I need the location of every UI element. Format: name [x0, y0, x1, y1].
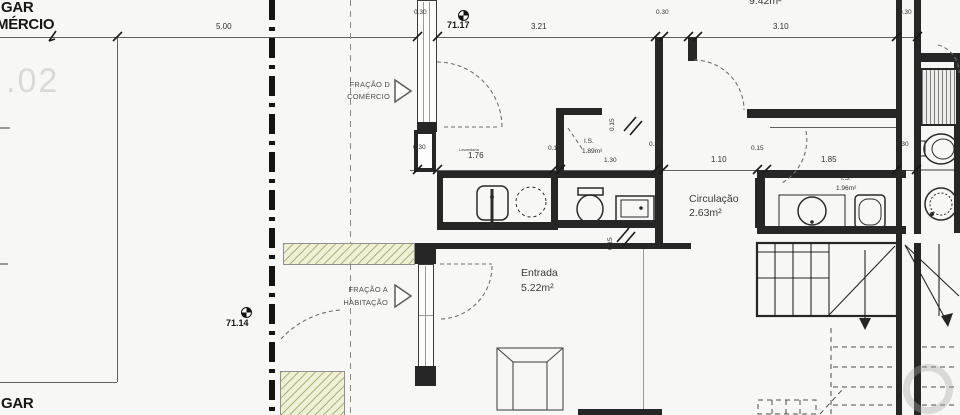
- dim-0-15-b: 0.15: [751, 146, 764, 153]
- dim-3-10: 3.10: [773, 23, 789, 31]
- dim-0-15-v2: 0.15: [608, 237, 615, 250]
- room-entrada-line1: Entrada: [521, 268, 558, 279]
- dim-0-15-v1: 0.15: [610, 118, 617, 131]
- room-is-189-line1: I.S.: [584, 139, 594, 146]
- watermark-logo: [903, 364, 953, 414]
- room-entrada-line2: 5.22m²: [521, 283, 554, 294]
- room-is-196-line2: 1.96m²: [836, 186, 856, 193]
- dim-0-15-a: 0.15: [548, 146, 561, 153]
- dim-1-85: 1.85: [821, 156, 837, 164]
- label-fracao-d-line2: COMÉRCIO: [328, 93, 390, 101]
- label-gar-bottom: GAR: [1, 396, 33, 412]
- label-fracao-a-line2: HABITAÇÃO: [326, 299, 388, 307]
- dim-1-76: 1.76: [468, 152, 484, 160]
- dim-0-30-mid-center: 0.30: [649, 142, 662, 149]
- label-mercio: MÉRCIO: [0, 17, 54, 33]
- dim-3-21: 3.21: [531, 23, 547, 31]
- room-is-196-line1: I.S.: [841, 176, 851, 183]
- annotation-layer: GARMÉRCIO.02GAR5.0071.173.213.109.42m²0.…: [0, 0, 960, 415]
- room-circulacao-line2: 2.63m²: [689, 208, 722, 219]
- dim-5-00: 5.00: [216, 23, 232, 31]
- dim-0-30-top-right: 0.30: [899, 10, 912, 17]
- dim-0-30-mid-left: 0.30: [413, 145, 426, 152]
- dim-0-30-top-left: 0.30: [414, 10, 427, 17]
- label-gar-top: GAR: [1, 0, 33, 16]
- dim-1-30: 1.30: [604, 158, 617, 165]
- dim-0-30-mid-right: 0.30: [896, 142, 909, 149]
- floor-plan-canvas: GARMÉRCIO.02GAR5.0071.173.213.109.42m²0.…: [0, 0, 960, 415]
- dim-0-30-top-mid: 0.30: [656, 10, 669, 17]
- room-area-9-42: 9.42m²: [749, 0, 782, 7]
- dim-1-10: 1.10: [711, 156, 727, 164]
- label-ghost-02: .02: [6, 64, 59, 100]
- level-71-14: 71.14: [226, 319, 249, 328]
- label-fracao-a-line1: FRAÇÃO A: [326, 286, 388, 294]
- level-71-17: 71.17: [447, 21, 470, 30]
- label-fracao-d-line1: FRAÇÃO D: [328, 81, 390, 89]
- room-is-189-line2: 1.89m²: [582, 149, 602, 156]
- room-circulacao-line1: Circulação: [689, 194, 739, 205]
